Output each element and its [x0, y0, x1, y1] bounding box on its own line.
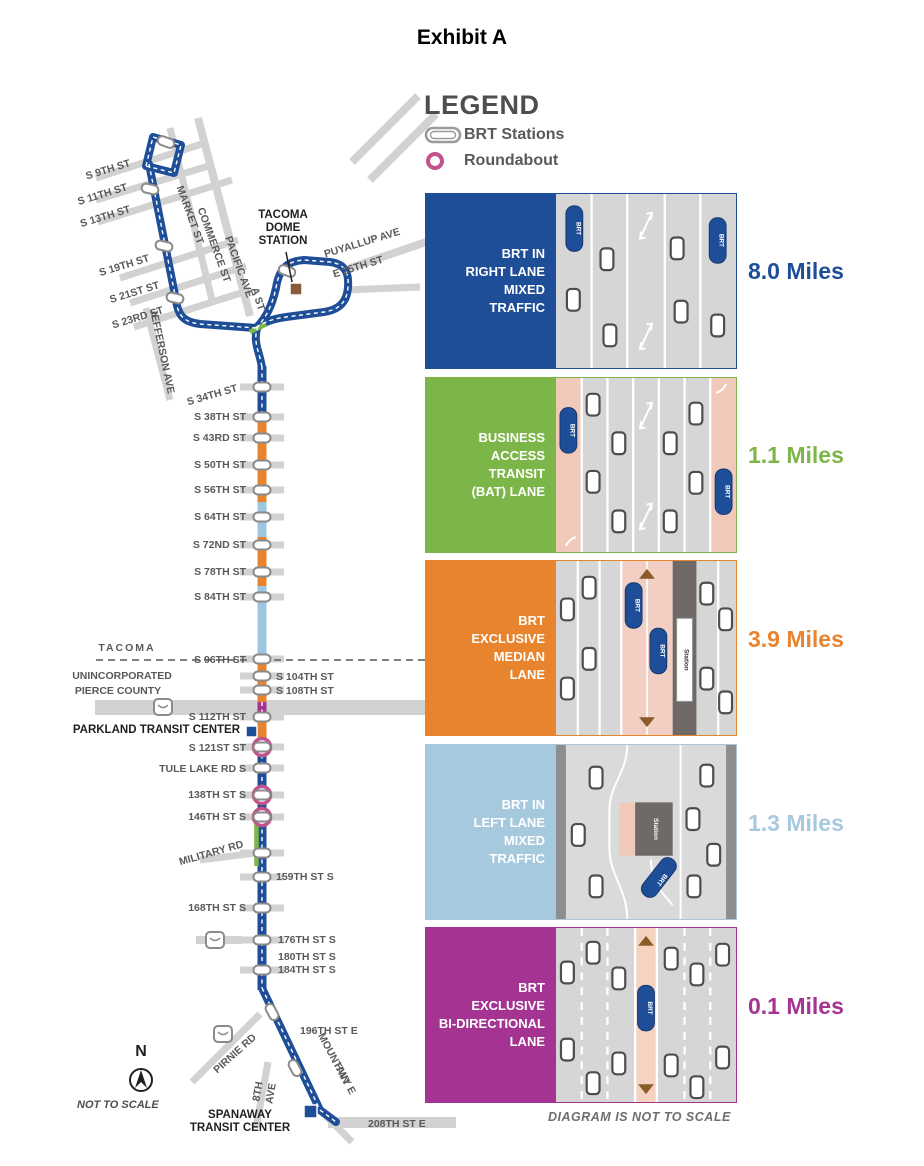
car-icon [664, 510, 677, 532]
label-line: EXCLUSIVE [471, 997, 545, 1015]
label-line: TRAFFIC [489, 850, 545, 868]
brt-station-pill [254, 461, 271, 470]
car-icon [719, 608, 732, 630]
brt-bus-icon: BRT [566, 206, 583, 251]
station-strip-label: Station [683, 649, 690, 671]
street-name-label: AVE [263, 1082, 278, 1105]
legend-row-roundabout: Roundabout [424, 151, 564, 171]
brt-station-pill [254, 486, 271, 495]
brt-station-pill [254, 936, 271, 945]
station-label: S 43RD ST [193, 432, 247, 444]
brt-station-pill [254, 672, 271, 681]
transit-center-label: DOME [266, 222, 301, 234]
label-line: ACCESS [491, 447, 545, 465]
station-label: 208TH ST E [368, 1118, 426, 1130]
label-line: BRT [518, 979, 545, 997]
station-label: S 13TH ST [79, 203, 133, 230]
car-icon [561, 1039, 574, 1061]
lane-type-label: BRT EXCLUSIVE MEDIAN LANE [426, 561, 556, 735]
brt-station-icon [424, 126, 464, 144]
station-label: S 112TH ST [189, 711, 247, 723]
mileage-label: 8.0 Miles [748, 258, 924, 285]
car-icon [700, 583, 713, 605]
station-label: S 34TH ST [186, 382, 240, 408]
highway-shield-icon [154, 699, 172, 715]
lane-type-label: BRT EXCLUSIVE BI-DIRECTIONAL LANE [426, 928, 556, 1102]
car-icon [690, 964, 703, 986]
car-icon [590, 876, 603, 898]
station-label: 176TH ST S [278, 934, 336, 946]
brt-bus-icon: BRT [638, 985, 655, 1030]
car-icon [687, 808, 700, 830]
brt-station-pill [254, 743, 271, 752]
lane-type-label: BRT IN RIGHT LANE MIXED TRAFFIC [426, 194, 556, 368]
label-line: LEFT LANE [474, 814, 546, 832]
boundary-label: PIERCE COUNTY [75, 685, 161, 697]
diagram-note: DIAGRAM IS NOT TO SCALE [548, 1110, 868, 1124]
brt-station-pill [264, 1002, 280, 1021]
brt-station-pill [254, 383, 271, 392]
boundary-label: UNINCORPORATED [72, 670, 172, 682]
station-label: S 121ST ST [189, 742, 247, 754]
label-line: MIXED [504, 281, 545, 299]
brt-bus-icon: BRT [625, 583, 642, 628]
svg-text:BRT: BRT [718, 234, 725, 247]
car-icon [688, 876, 701, 898]
station-label: S 11TH ST [76, 181, 129, 208]
station-label: S 64TH ST [194, 511, 247, 523]
brt-station-pill [254, 434, 271, 443]
transit-center-marker [246, 726, 257, 737]
lane-type-label: BUSINESS ACCESS TRANSIT (BAT) LANE [426, 378, 556, 552]
lane-type-card-median: BRT EXCLUSIVE MEDIAN LANE StationBRTBRT [425, 560, 737, 736]
station-label: S 96TH ST [194, 654, 247, 666]
svg-text:BRT: BRT [568, 424, 575, 437]
brt-bus-icon: BRT [650, 628, 667, 673]
road-diagram-bat: BRTBRT [556, 378, 736, 552]
car-icon [572, 824, 585, 846]
transit-center-label: TACOMA [258, 209, 308, 221]
station-label: 196TH ST E [300, 1025, 358, 1037]
car-icon [716, 1047, 729, 1069]
exhibit-page: Exhibit A TACOMADOMESTATIONPARKLAND TRAN… [0, 0, 924, 1166]
highway-shield-icon [214, 1026, 232, 1042]
brt-station-pill [254, 849, 271, 858]
svg-text:BRT: BRT [646, 1001, 653, 1014]
brt-left-lane [619, 802, 635, 855]
lane-type-card-bidir: BRT EXCLUSIVE BI-DIRECTIONAL LANE BRT [425, 927, 737, 1103]
road-diagram-right-mixed: BRTBRT [556, 194, 736, 368]
lane-type-card-right-mixed: BRT IN RIGHT LANE MIXED TRAFFIC BRTBRT [425, 193, 737, 369]
street [345, 287, 420, 290]
station-label: 180TH ST S [278, 951, 336, 963]
label-line: LANE [510, 666, 545, 684]
road-diagram-bidir: BRT [556, 928, 736, 1102]
car-icon [587, 1072, 600, 1094]
car-icon [561, 599, 574, 621]
street [352, 96, 418, 162]
road-diagram-median: StationBRTBRT [556, 561, 736, 735]
station-strip-label: Station [652, 818, 659, 840]
station-label: TULE LAKE RD S [159, 763, 246, 775]
mileage-label: 0.1 Miles [748, 993, 924, 1020]
car-icon [561, 962, 574, 984]
brt-station-pill [254, 686, 271, 695]
route-segment [256, 326, 262, 368]
station-label: S 84TH ST [194, 591, 247, 603]
svg-text:BRT: BRT [724, 485, 731, 498]
station-label: S 104TH ST [276, 671, 334, 683]
car-icon [711, 315, 724, 337]
not-to-scale-label: NOT TO SCALE [77, 1099, 159, 1111]
street-name-label: E 25TH ST [332, 254, 386, 281]
label-line: BRT [518, 612, 545, 630]
legend-row-brt-stations: BRT Stations [424, 126, 564, 144]
station-label: 168TH ST S [188, 902, 246, 914]
car-icon [716, 944, 729, 966]
car-icon [671, 238, 684, 260]
compass-n-label: N [135, 1043, 147, 1060]
car-icon [675, 301, 688, 323]
car-icon [665, 948, 678, 970]
brt-station-pill [254, 541, 271, 550]
label-line: BI-DIRECTIONAL [439, 1015, 545, 1033]
transit-center-marker [290, 283, 302, 295]
station-label: S 56TH ST [194, 484, 247, 496]
bat-lane [556, 378, 582, 552]
car-icon [690, 472, 703, 494]
boundary-label: TACOMA [98, 642, 155, 654]
car-icon [561, 678, 574, 700]
car-icon [583, 648, 596, 670]
transit-center-label: PARKLAND TRANSIT CENTER [73, 724, 241, 736]
car-icon [587, 942, 600, 964]
car-icon [707, 844, 720, 866]
station-label: S 78TH ST [194, 566, 247, 578]
transit-center-marker [304, 1105, 317, 1118]
label-line: MIXED [504, 832, 545, 850]
transit-center-label: STATION [259, 235, 308, 247]
brt-station-pill [254, 764, 271, 773]
brt-bus-icon: BRT [560, 408, 577, 453]
car-icon [612, 432, 625, 454]
brt-station-pill [155, 240, 174, 253]
highway-shield-icon [206, 932, 224, 948]
brt-station-pill [166, 292, 185, 305]
brt-station-pill [254, 413, 271, 422]
car-icon [690, 1076, 703, 1098]
car-icon [700, 668, 713, 690]
label-line: MEDIAN [494, 648, 545, 666]
car-icon [719, 692, 732, 714]
mileage-label: 3.9 Miles [748, 626, 924, 653]
compass-icon [130, 1069, 152, 1091]
station-label: S 9TH ST [84, 157, 132, 182]
car-icon [612, 1053, 625, 1075]
brt-bus-icon: BRT [709, 218, 726, 263]
brt-station-pill [254, 593, 271, 602]
station-label: 159TH ST S [276, 871, 334, 883]
station-label: 138TH ST S [188, 789, 246, 801]
brt-station-pill [254, 568, 271, 577]
car-icon [612, 510, 625, 532]
brt-station-pill [254, 873, 271, 882]
label-line: BRT IN [502, 796, 545, 814]
svg-text:BRT: BRT [574, 222, 581, 235]
car-icon [700, 765, 713, 787]
brt-station-pill [254, 966, 271, 975]
label-line: BRT IN [502, 245, 545, 263]
car-icon [603, 325, 616, 347]
car-icon [612, 968, 625, 990]
lane-type-card-left-mixed: BRT IN LEFT LANE MIXED TRAFFIC StationBR… [425, 744, 737, 920]
legend-brt-stations-label: BRT Stations [464, 126, 564, 144]
brt-station-pill [254, 813, 271, 822]
label-line: RIGHT LANE [466, 263, 545, 281]
mileage-label: 1.1 Miles [748, 442, 924, 469]
route-map: TACOMADOMESTATIONPARKLAND TRANSIT CENTER… [0, 0, 460, 1166]
station-label: S 108TH ST [276, 685, 334, 697]
label-line: TRAFFIC [489, 299, 545, 317]
street-name-label: HWY E [331, 1061, 358, 1097]
label-line: (BAT) LANE [472, 483, 545, 501]
car-icon [601, 248, 614, 270]
transit-center-label: SPANAWAY [208, 1109, 272, 1121]
car-icon [690, 403, 703, 425]
legend: LEGEND BRT Stations Roundabout [424, 92, 564, 171]
station-label: 184TH ST S [278, 964, 336, 976]
label-line: EXCLUSIVE [471, 630, 545, 648]
station-label: 146TH ST S [188, 811, 246, 823]
station-label: S 72ND ST [193, 539, 247, 551]
car-icon [587, 471, 600, 493]
car-icon [583, 577, 596, 599]
lane-type-card-bat: BUSINESS ACCESS TRANSIT (BAT) LANE BRTBR… [425, 377, 737, 553]
lane-type-label: BRT IN LEFT LANE MIXED TRAFFIC [426, 745, 556, 919]
roundabout-icon [424, 151, 464, 171]
bat-lane [710, 378, 736, 552]
brt-station-pill [254, 655, 271, 664]
sidewalk [726, 745, 736, 919]
mileage-label: 1.3 Miles [748, 810, 924, 837]
svg-text:BRT: BRT [634, 599, 641, 612]
car-icon [665, 1055, 678, 1077]
legend-title: LEGEND [424, 92, 564, 119]
brt-station-pill [254, 713, 271, 722]
car-icon [590, 767, 603, 789]
svg-text:BRT: BRT [658, 644, 665, 657]
transit-center-label: TRANSIT CENTER [190, 1122, 291, 1134]
label-line: TRANSIT [489, 465, 545, 483]
legend-roundabout-label: Roundabout [464, 152, 558, 170]
brt-station-pill [254, 904, 271, 913]
label-line: BUSINESS [479, 429, 545, 447]
brt-station-pill [254, 791, 271, 800]
sidewalk [556, 745, 566, 919]
brt-station-pill [254, 513, 271, 522]
car-icon [567, 289, 580, 311]
brt-bus-icon: BRT [715, 469, 732, 514]
label-line: LANE [510, 1033, 545, 1051]
road-diagram-left-mixed: StationBRT [556, 745, 736, 919]
station-label: S 50TH ST [194, 459, 247, 471]
car-icon [664, 432, 677, 454]
car-icon [587, 394, 600, 416]
station-label: S 38TH ST [194, 411, 247, 423]
